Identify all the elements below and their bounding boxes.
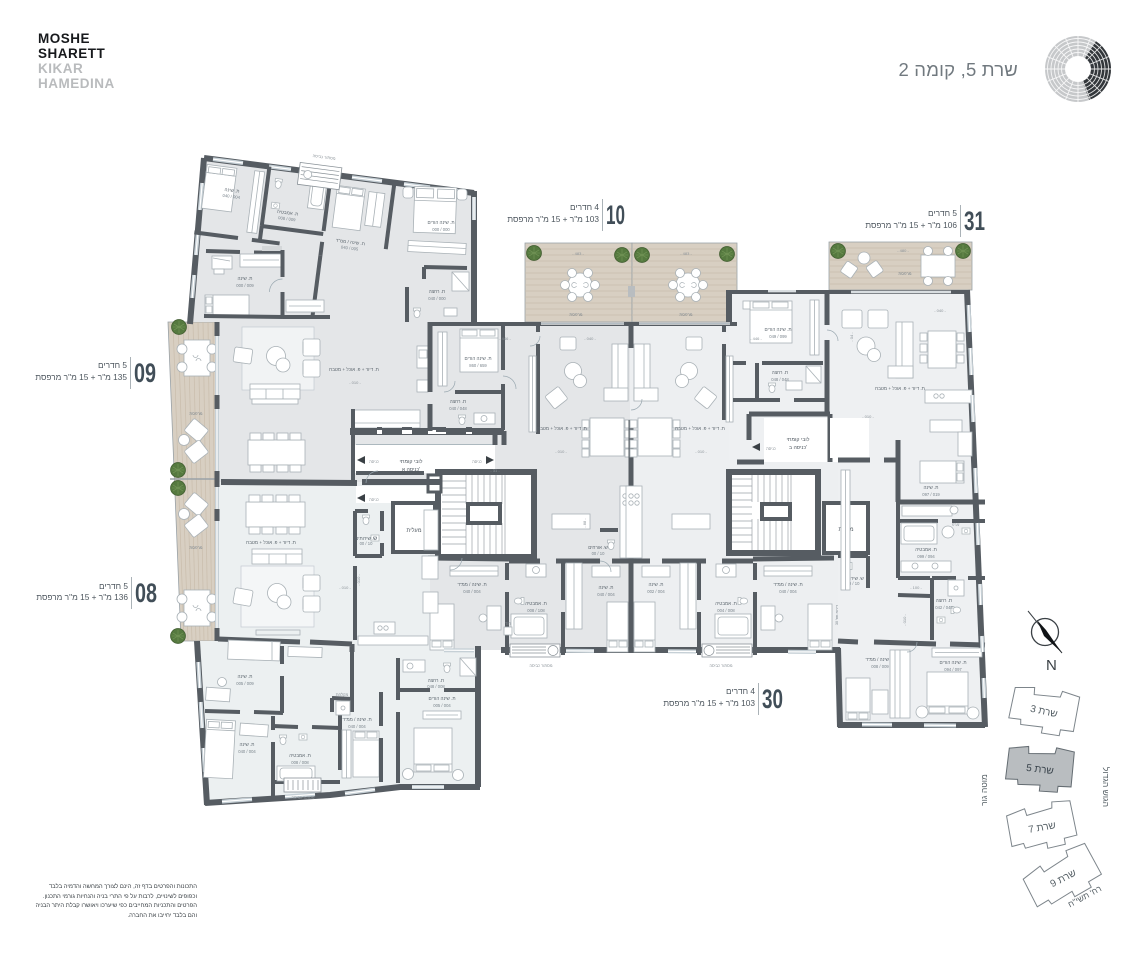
svg-text:000 / 000: 000 / 000 bbox=[432, 227, 450, 232]
svg-text:097 / 019: 097 / 019 bbox=[922, 492, 940, 497]
svg-text:094 / 097: 094 / 097 bbox=[944, 667, 962, 672]
svg-text:- 04 -: - 04 - bbox=[849, 332, 854, 342]
svg-text:- 010 -: - 010 - bbox=[555, 449, 567, 454]
svg-text:כניסה: כניסה bbox=[369, 459, 379, 464]
svg-text:- 040 -: - 040 - bbox=[934, 308, 946, 313]
svg-text:- 446 -: - 446 - bbox=[750, 336, 762, 341]
svg-text:N: N bbox=[1046, 657, 1057, 674]
svg-text:005 / 004: 005 / 004 bbox=[433, 703, 451, 708]
svg-text:ת. שינה הורים: ת. שינה הורים bbox=[427, 220, 454, 225]
svg-text:כניסה: כניסה bbox=[369, 497, 379, 502]
svg-text:ש. אורחים: ש. אורחים bbox=[588, 545, 608, 550]
svg-text:136 מ"ר + 15 מ"ר מרפסת: 136 מ"ר + 15 מ"ר מרפסת bbox=[36, 592, 128, 602]
svg-text:מרפסת: מרפסת bbox=[898, 271, 911, 276]
svg-text:ת. שינה / ממ"ד: ת. שינה / ממ"ד bbox=[457, 582, 486, 587]
svg-text:008 / 108: 008 / 108 bbox=[527, 608, 545, 613]
svg-text:00 / 10: 00 / 10 bbox=[592, 551, 605, 556]
svg-text:040 / 004: 040 / 004 bbox=[348, 724, 366, 729]
svg-text:- 480 -: - 480 - bbox=[897, 248, 909, 253]
svg-text:005 / 009: 005 / 009 bbox=[236, 681, 254, 686]
svg-text:דוד: דוד bbox=[505, 621, 511, 626]
svg-text:042 / 048: 042 / 048 bbox=[935, 605, 953, 610]
svg-text:31: 31 bbox=[964, 206, 985, 236]
svg-text:ת. שינה: ת. שינה bbox=[649, 582, 664, 587]
svg-text:- 040 -: - 040 - bbox=[584, 336, 596, 341]
svg-text:048 / 048: 048 / 048 bbox=[771, 377, 789, 382]
svg-text:ת. דיור + פ. אוכל + מטבח: ת. דיור + פ. אוכל + מטבח bbox=[537, 426, 587, 431]
svg-text:ת. רחצה: ת. רחצה bbox=[450, 399, 466, 404]
svg-text:הגוש הגדול: הגוש הגדול bbox=[1101, 767, 1111, 807]
svg-text:040 / 004: 040 / 004 bbox=[597, 592, 615, 597]
svg-text:040 / 004: 040 / 004 bbox=[779, 589, 797, 594]
svg-text:- 31 -: - 31 - bbox=[490, 468, 500, 473]
svg-text:30: 30 bbox=[762, 684, 783, 714]
svg-text:103 מ"ר + 15 מ"ר מרפסת: 103 מ"ר + 15 מ"ר מרפסת bbox=[663, 698, 755, 708]
svg-text:- 010 -: - 010 - bbox=[862, 414, 874, 419]
svg-text:ת. שינה: ת. שינה bbox=[238, 276, 253, 281]
svg-text:מרפסת: מרפסת bbox=[569, 312, 582, 317]
svg-text:דירות מס' 30: דירות מס' 30 bbox=[835, 605, 839, 625]
svg-text:מסתור כביסה: מסתור כביסה bbox=[710, 663, 733, 668]
svg-text:ת. שינה / ממ"ד: ת. שינה / ממ"ד bbox=[773, 582, 802, 587]
svg-text:040 / 004: 040 / 004 bbox=[463, 589, 481, 594]
svg-text:ת. דיור + פ. אוכל + מטבח: ת. דיור + פ. אוכל + מטבח bbox=[875, 386, 925, 391]
svg-text:040 / 048: 040 / 048 bbox=[449, 406, 467, 411]
svg-text:ת. רחצה: ת. רחצה bbox=[772, 370, 788, 375]
svg-text:כניסה א': כניסה א' bbox=[402, 467, 420, 473]
svg-text:ת. אמבטיה: ת. אמבטיה bbox=[715, 601, 737, 606]
svg-text:049 / 099: 049 / 099 bbox=[769, 334, 787, 339]
svg-text:ת. דיור + פ. אוכל + מטבח: ת. דיור + פ. אוכל + מטבח bbox=[675, 426, 725, 431]
svg-text:040 / 000: 040 / 000 bbox=[428, 296, 446, 301]
svg-text:ת. רחצה: ת. רחצה bbox=[936, 598, 952, 603]
svg-text:ת. אמבטיה: ת. אמבטיה bbox=[289, 753, 311, 758]
svg-text:00 / 10: 00 / 10 bbox=[360, 541, 373, 546]
svg-text:ת. רחצה: ת. רחצה bbox=[428, 678, 444, 683]
svg-text:- 88 -: - 88 - bbox=[582, 518, 587, 528]
svg-text:- 010 -: - 010 - bbox=[902, 614, 907, 626]
svg-text:ת. דיור + פ. אוכל + מטבח: ת. דיור + פ. אוכל + מטבח bbox=[246, 540, 296, 545]
svg-text:- 446 -: - 446 - bbox=[499, 336, 511, 341]
svg-text:כניסה: כניסה bbox=[472, 459, 482, 464]
svg-text:040 / 004: 040 / 004 bbox=[238, 749, 256, 754]
svg-text:000 / 009: 000 / 009 bbox=[236, 283, 254, 288]
svg-text:- 010 -: - 010 - bbox=[356, 574, 361, 586]
svg-text:לובי קומתי: לובי קומתי bbox=[400, 458, 423, 465]
svg-text:ת. שינה הורים: ת. שינה הורים bbox=[939, 660, 966, 665]
svg-text:5 חדרים: 5 חדרים bbox=[98, 360, 127, 370]
svg-text:860 / 659: 860 / 659 bbox=[469, 363, 487, 368]
svg-text:135 מ"ר + 15 מ"ר מרפסת: 135 מ"ר + 15 מ"ר מרפסת bbox=[35, 372, 127, 382]
svg-text:ת. שינה: ת. שינה bbox=[924, 485, 939, 490]
svg-text:מסתור כביסה: מסתור כביסה bbox=[530, 663, 553, 668]
svg-text:4 חדרים: 4 חדרים bbox=[726, 686, 755, 696]
svg-text:ת. שינה: ת. שינה bbox=[238, 674, 253, 679]
svg-text:- 483 -: - 483 - bbox=[572, 251, 584, 256]
svg-text:מקלחת: מקלחת bbox=[336, 692, 349, 697]
svg-text:מרפסת: מרפסת bbox=[189, 545, 202, 550]
svg-text:ת. שינה: ת. שינה bbox=[599, 585, 614, 590]
svg-text:מוטה גור: מוטה גור bbox=[979, 774, 989, 806]
svg-text:08: 08 bbox=[135, 578, 157, 608]
svg-text:מסתור כביסה: מסתור כביסה bbox=[292, 795, 315, 800]
svg-text:002 / 004: 002 / 004 bbox=[647, 589, 665, 594]
svg-text:מרפ': מרפ' bbox=[952, 522, 960, 527]
svg-text:5 חדרים: 5 חדרים bbox=[99, 581, 128, 591]
svg-text:מרפסת: מרפסת bbox=[189, 411, 202, 416]
svg-text:4 חדרים: 4 חדרים bbox=[570, 202, 599, 212]
svg-text:ת. אמבטיה: ת. אמבטיה bbox=[525, 601, 547, 606]
svg-text:ת. שינה: ת. שינה bbox=[240, 742, 255, 747]
svg-text:לובי קומתי: לובי קומתי bbox=[787, 436, 810, 443]
svg-text:103 מ"ר + 15 מ"ר מרפסת: 103 מ"ר + 15 מ"ר מרפסת bbox=[507, 214, 599, 224]
svg-text:008 / 009: 008 / 009 bbox=[871, 664, 889, 669]
svg-text:10: 10 bbox=[606, 200, 625, 230]
svg-text:008 / 008: 008 / 008 bbox=[291, 760, 309, 765]
svg-text:- 010 -: - 010 - bbox=[349, 380, 361, 385]
svg-text:ת. אמבטיה: ת. אמבטיה bbox=[915, 547, 937, 552]
svg-text:מרפסת: מרפסת bbox=[679, 312, 692, 317]
svg-text:106 מ"ר + 15 מ"ר מרפסת: 106 מ"ר + 15 מ"ר מרפסת bbox=[865, 220, 957, 230]
svg-text:09: 09 bbox=[134, 358, 156, 388]
svg-text:ת. שינה / ממ"ד: ת. שינה / ממ"ד bbox=[342, 717, 371, 722]
svg-text:כניסה ב': כניסה ב' bbox=[789, 445, 807, 451]
svg-text:- 010 -: - 010 - bbox=[339, 585, 351, 590]
svg-text:מעלית: מעלית bbox=[407, 527, 422, 534]
svg-text:כניסה: כניסה bbox=[766, 446, 776, 451]
svg-text:- 483 -: - 483 - bbox=[680, 251, 692, 256]
svg-text:- 010 -: - 010 - bbox=[695, 449, 707, 454]
svg-text:- 100 -: - 100 - bbox=[910, 585, 922, 590]
svg-text:ת. שינה הורים: ת. שינה הורים bbox=[764, 327, 791, 332]
svg-text:ת. דיור + פ. אוכל + מטבח: ת. דיור + פ. אוכל + מטבח bbox=[329, 367, 379, 372]
svg-text:ת. שינה הורים: ת. שינה הורים bbox=[464, 356, 491, 361]
svg-text:048 / 008: 048 / 008 bbox=[427, 684, 445, 689]
svg-text:ת. רחצה: ת. רחצה bbox=[429, 289, 445, 294]
svg-text:099 / 094: 099 / 094 bbox=[917, 554, 935, 559]
svg-text:ת. שינה הורים: ת. שינה הורים bbox=[428, 696, 455, 701]
svg-text:004 / 008: 004 / 008 bbox=[717, 608, 735, 613]
svg-text:5 חדרים: 5 חדרים bbox=[928, 208, 957, 218]
